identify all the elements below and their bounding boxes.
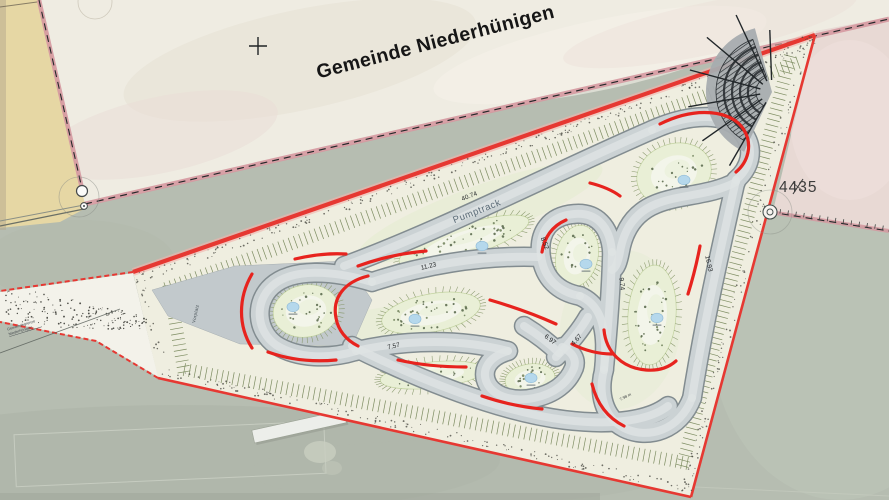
pond — [287, 302, 299, 312]
pond-area-label — [478, 253, 487, 254]
pond-area-label — [289, 314, 298, 315]
pond — [651, 313, 663, 323]
pond — [525, 373, 537, 383]
site-plan-canvas: Gemeinde Niederhünigen 40.74 Pumptrack 8… — [0, 0, 889, 500]
pond-area-label — [680, 187, 689, 188]
pond — [476, 241, 488, 251]
pond-area-label — [653, 325, 662, 326]
pond-area-label — [527, 385, 536, 386]
plan-drawing: Gemeinde Niederhünigen 40.74 Pumptrack 8… — [0, 0, 889, 500]
pond — [580, 259, 592, 269]
pond-area-label — [411, 326, 420, 327]
pond — [409, 314, 421, 324]
pond — [678, 175, 690, 185]
dimension-label: 9.74 — [617, 277, 625, 291]
pond-area-label — [582, 271, 591, 272]
survey-point — [77, 186, 88, 197]
